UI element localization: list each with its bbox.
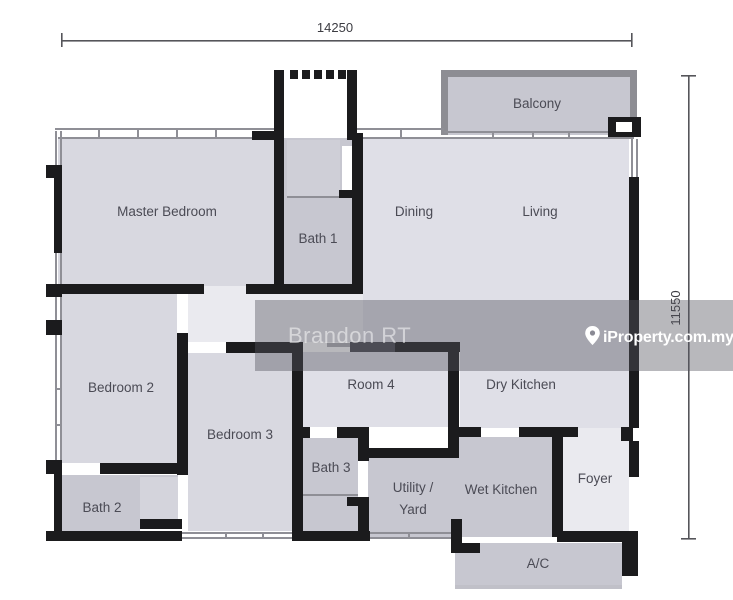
- wall-bath3-stub: [347, 497, 358, 506]
- dimension-line-top: [62, 40, 632, 42]
- label-bedroom3: Bedroom 3: [207, 427, 273, 442]
- bedroom2-floor: [62, 294, 177, 463]
- wall-yard-left: [274, 70, 284, 140]
- wall-left-segment: [54, 165, 62, 253]
- ac-ledge-shadow: [455, 585, 622, 589]
- window-mullion: [568, 132, 570, 138]
- window-mullion: [492, 132, 494, 138]
- bath3-floor: [303, 438, 358, 531]
- bath1-door-jamb: [339, 190, 355, 198]
- wall-utility-top: [368, 448, 459, 458]
- wall-bedroom2-hall: [177, 333, 188, 475]
- label-utility-line1: Utility /: [393, 480, 434, 495]
- wall-master-bath1: [274, 140, 284, 294]
- window-mullion: [56, 388, 62, 390]
- location-pin-icon-hole: [590, 330, 595, 335]
- bath1-divider-line: [287, 196, 340, 198]
- wall-master-bottom-right: [246, 284, 363, 294]
- wall-wetkitchen-foyer: [552, 427, 563, 537]
- window-bottom-bedroom3-inner: [182, 537, 292, 539]
- dimension-tick: [61, 33, 63, 47]
- bath1-shower-area: [287, 140, 340, 196]
- label-master-bedroom: Master Bedroom: [117, 204, 217, 219]
- window-balcony-sill: [444, 131, 634, 133]
- window-mullion: [176, 130, 178, 138]
- label-dry-kitchen: Dry Kitchen: [486, 377, 556, 392]
- wall-wetkitchen-top-left: [459, 427, 481, 437]
- wall-dashed-segment: [326, 70, 334, 79]
- window-left-3-inner: [60, 297, 62, 320]
- window-left-1: [55, 131, 57, 165]
- dimension-width-label: 14250: [317, 20, 353, 35]
- window-mullion: [532, 132, 534, 138]
- wall-left-stub: [46, 284, 62, 297]
- window-left-4-inner: [60, 335, 62, 460]
- wall-dashed-segment: [338, 70, 346, 79]
- dimension-tick: [631, 33, 633, 47]
- window-left-3: [55, 297, 57, 320]
- label-bath2: Bath 2: [82, 500, 121, 515]
- window-mullion: [408, 533, 410, 538]
- label-dining: Dining: [395, 204, 433, 219]
- wall-bath3-right-upper: [358, 427, 369, 461]
- bath3-divider-line: [303, 494, 358, 496]
- label-living: Living: [522, 204, 557, 219]
- label-room4: Room 4: [347, 377, 395, 392]
- window-mullion: [262, 533, 264, 538]
- wall-top-connector: [252, 131, 274, 140]
- window-living-right-inner: [636, 139, 638, 177]
- label-balcony: Balcony: [513, 96, 561, 111]
- window-left-4: [55, 335, 57, 460]
- window-left-1-inner: [60, 131, 62, 165]
- bath2-shower-area: [140, 477, 178, 519]
- wall-dashed-segment: [314, 70, 322, 79]
- window-mullion: [137, 130, 139, 138]
- wall-bath2-jamb: [140, 519, 182, 529]
- window-mullion: [225, 533, 227, 538]
- watermark-band: Brandon RT iProperty.com.my: [255, 300, 733, 371]
- wall-ac-foot: [451, 543, 480, 553]
- watermark-agent-text: Brandon RT: [288, 323, 411, 348]
- wall-bottom-bath2: [46, 531, 182, 541]
- window-mullion: [400, 130, 402, 138]
- wall-bath3-right-lower: [358, 497, 369, 537]
- wall-left-stub: [46, 320, 62, 335]
- window-mullion: [98, 130, 100, 138]
- wall-bath3-top-left: [292, 427, 310, 438]
- wall-left-segment: [54, 460, 62, 541]
- label-utility-line2: Yard: [399, 502, 427, 517]
- dimension-tick: [681, 538, 696, 540]
- window-left-2-inner: [60, 253, 62, 284]
- utility-yard-floor: [368, 458, 459, 537]
- bedroom3-floor: [188, 353, 292, 531]
- window-balcony-sill-inner: [444, 137, 634, 139]
- window-left-2: [55, 253, 57, 284]
- label-wet-kitchen: Wet Kitchen: [465, 482, 538, 497]
- label-ac: A/C: [527, 556, 550, 571]
- floor-plan-svg: 14250 11550 Balcony Master Bedroom Bath …: [0, 0, 733, 600]
- wall-master-bottom-left: [54, 284, 204, 294]
- window-mullion: [215, 130, 217, 138]
- bath1-door-leaf: [342, 146, 352, 190]
- label-bath3: Bath 3: [311, 460, 350, 475]
- window-top-dining: [352, 128, 444, 130]
- wall-yard-right: [347, 70, 357, 140]
- window-mullion: [56, 424, 62, 426]
- label-foyer: Foyer: [578, 471, 613, 486]
- floor-plan-image: 14250 11550 Balcony Master Bedroom Bath …: [0, 0, 733, 600]
- window-living-right: [631, 139, 633, 177]
- label-bath1: Bath 1: [298, 231, 337, 246]
- dimension-tick: [681, 75, 696, 77]
- balcony-ac-block-inner: [616, 122, 632, 132]
- window-bottom-bedroom3: [182, 532, 292, 534]
- wall-dashed-segment: [302, 70, 310, 79]
- window-top-master: [55, 128, 274, 130]
- label-bedroom2: Bedroom 2: [88, 380, 154, 395]
- wall-bedroom2-bath2: [100, 463, 188, 474]
- wall-dashed-segment: [290, 70, 298, 79]
- wall-foyer-bottom: [557, 531, 629, 542]
- window-top-master-inner: [58, 137, 274, 139]
- wall-right-notch: [621, 427, 633, 441]
- wall-bedroom3-right: [292, 342, 303, 540]
- wall-right-lower: [629, 441, 639, 477]
- watermark-brand-text: iProperty.com.my: [603, 329, 733, 346]
- wall-foyer-top: [540, 427, 578, 437]
- wall-bath1-dining: [352, 133, 363, 294]
